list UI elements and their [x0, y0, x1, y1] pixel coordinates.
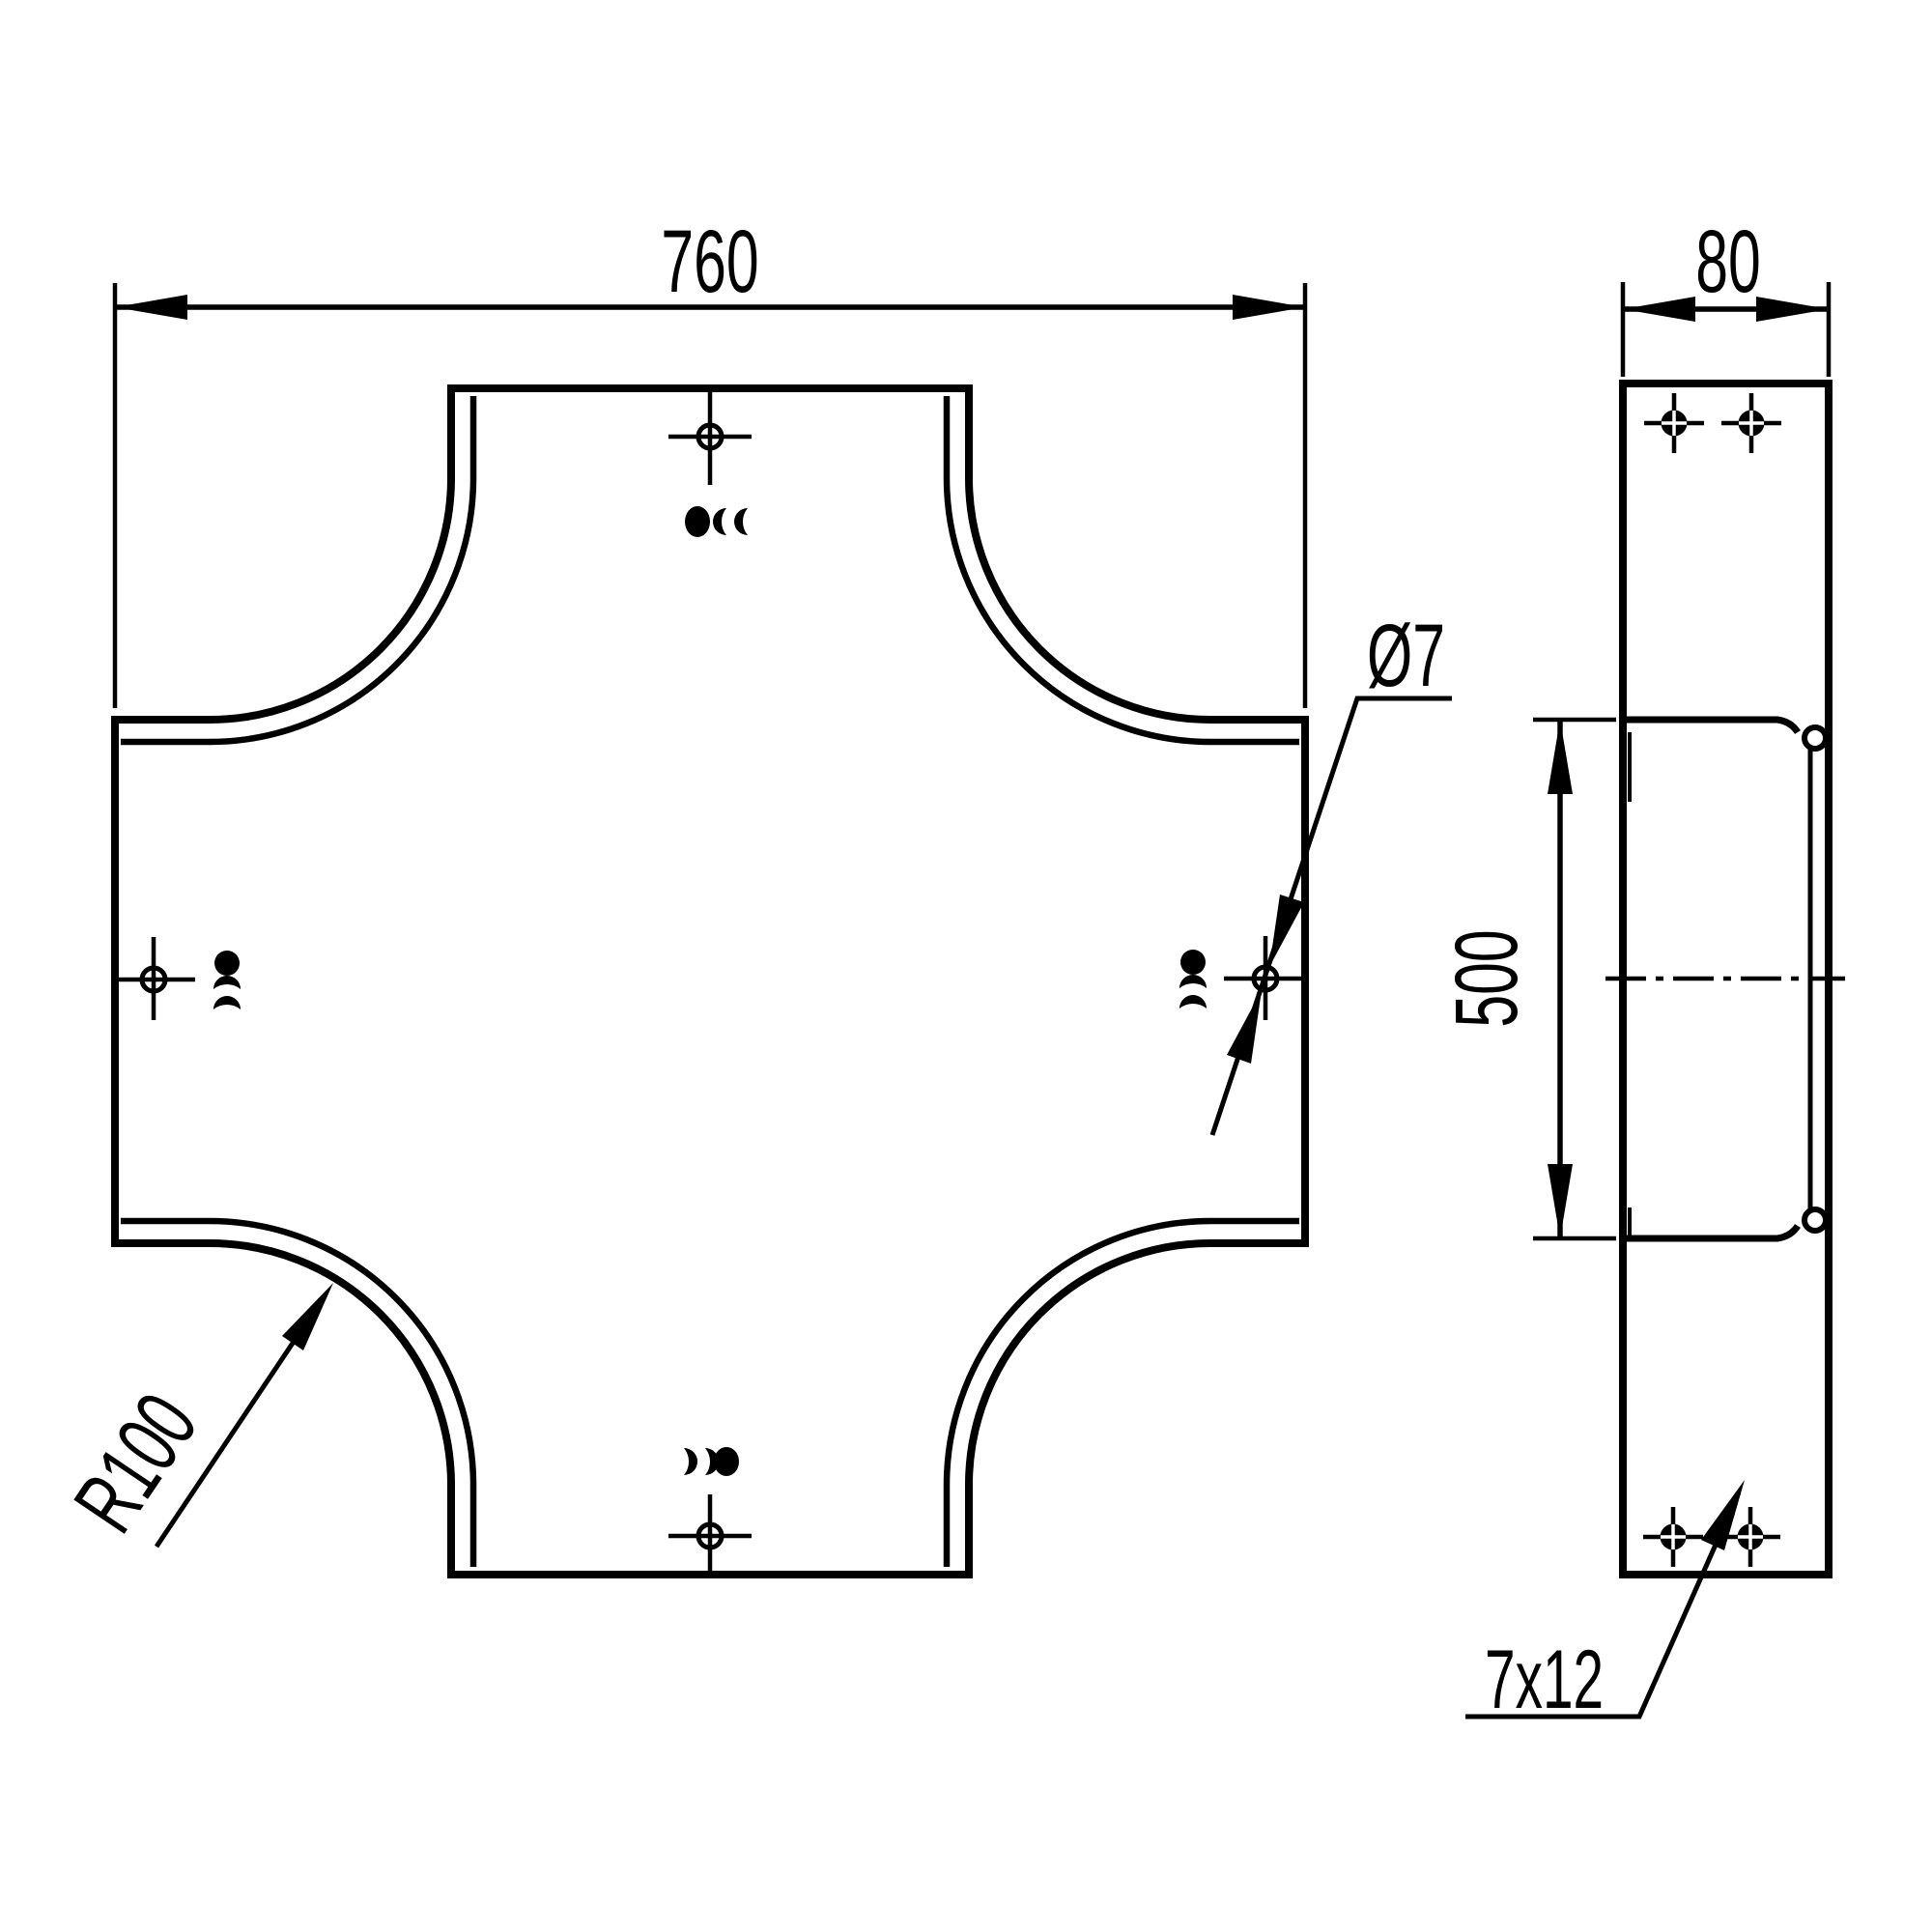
dimension-500: 500 [1435, 720, 1616, 1238]
slot-size-label: 7x12 [1485, 1634, 1604, 1726]
drawing-canvas: 760 Ø7 R100 [0, 0, 1932, 1932]
emboss-mark-right-icon [1179, 950, 1207, 1009]
slot-top-right-icon [1721, 393, 1781, 453]
rolled-lip-top-icon [1804, 727, 1826, 749]
leader-corner-radius: R100 [55, 1283, 333, 1548]
emboss-mark-top-icon [685, 506, 748, 537]
dim-depth-label: 80 [1695, 211, 1761, 311]
slot-top-left-icon [1644, 393, 1704, 453]
arrowhead-radius-icon [282, 1283, 333, 1350]
arrowhead-right-icon [1233, 295, 1305, 320]
inner-flange-bottom-right [947, 1221, 1299, 1567]
hole-mark-left [115, 937, 195, 1020]
hole-diameter-label: Ø7 [1367, 605, 1445, 705]
emboss-mark-bottom-icon [684, 1447, 739, 1476]
dim-opening-length-label: 500 [1435, 929, 1536, 1027]
raised-section-bottom-edge [1623, 1226, 1798, 1238]
technical-drawing: 760 Ø7 R100 [0, 0, 1932, 1932]
side-view: 80 500 7x12 [1435, 211, 1845, 1726]
arrowhead-left-icon [115, 295, 187, 320]
arrowhead-up-icon [1548, 720, 1573, 794]
corner-radius-label: R100 [55, 1377, 216, 1548]
front-view: 760 Ø7 R100 [55, 211, 1452, 1575]
rolled-lip-bottom-icon [1804, 1209, 1826, 1231]
arrowhead-upper-icon [1269, 895, 1304, 967]
arrowhead-lower-icon [1227, 990, 1262, 1064]
leader-slot-size: 7x12 [1465, 1480, 1745, 1726]
dim-overall-width-label: 760 [661, 211, 758, 311]
outer-contour [115, 388, 1305, 1575]
arrowhead-right-icon [1756, 297, 1829, 322]
inner-flange-top-left [121, 396, 473, 742]
arrowhead-down-icon [1548, 1164, 1573, 1238]
hole-mark-bottom [668, 1494, 752, 1575]
inner-flange-top-right [947, 396, 1299, 742]
raised-section-top-edge [1623, 720, 1798, 732]
dimension-80: 80 [1623, 211, 1829, 377]
leader-hole-diameter: Ø7 [1212, 605, 1452, 1135]
slot-bottom-left-icon [1643, 1507, 1703, 1567]
inner-flange-bottom-left [121, 1221, 473, 1567]
hole-mark-top [668, 388, 752, 485]
arrowhead-left-icon [1623, 297, 1695, 322]
emboss-mark-left-icon [213, 951, 241, 1009]
